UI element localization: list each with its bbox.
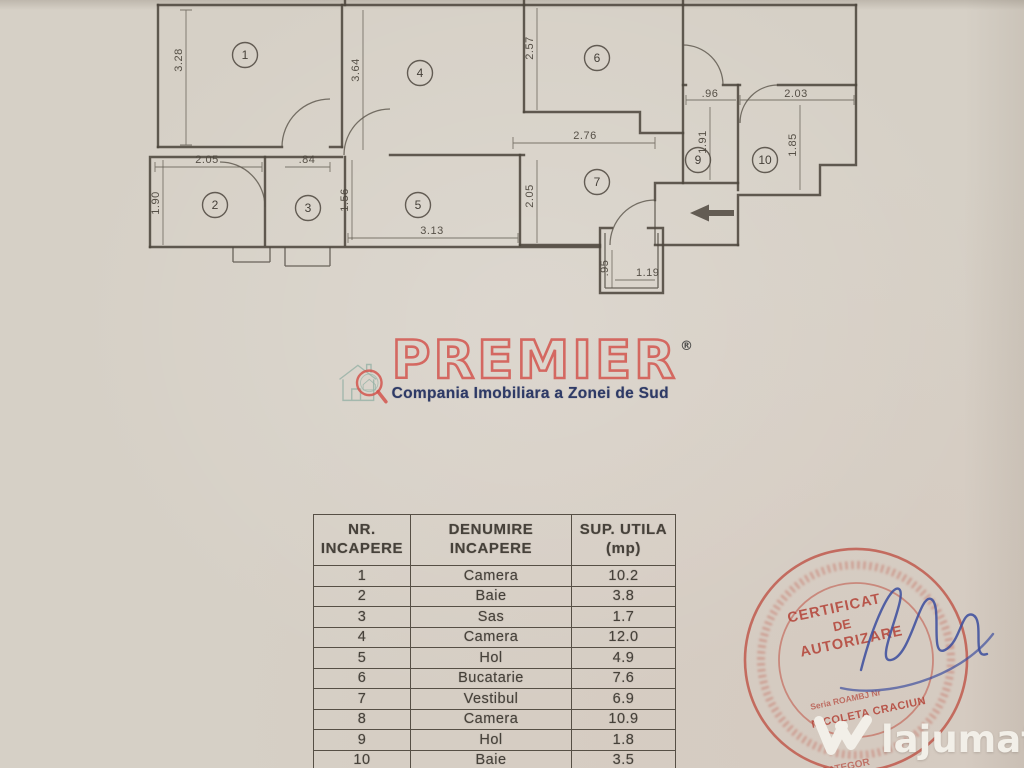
cell-area: 12.0 bbox=[572, 627, 676, 648]
watermark-site: lajumate bbox=[881, 718, 1024, 761]
brand-tagline: Compania Imobiliara a Zonei de Sud bbox=[392, 385, 696, 403]
cell-area: 3.5 bbox=[572, 750, 676, 768]
cell-nr: 8 bbox=[314, 709, 411, 730]
dim-hall-height: 2.05 bbox=[524, 184, 536, 207]
dim-room6-height: 2.57 bbox=[524, 36, 536, 59]
dim-room1-height: 3.28 bbox=[173, 48, 185, 71]
table-row: 1Camera10.2 bbox=[314, 566, 676, 587]
header-room-number-line1: NR. bbox=[314, 521, 410, 540]
watermark-text: lajumate.ro bbox=[881, 721, 1024, 758]
dim-hall-width: 2.76 bbox=[573, 130, 596, 142]
cell-area: 10.2 bbox=[572, 566, 676, 587]
cell-name: Sas bbox=[411, 607, 572, 628]
cell-area: 4.9 bbox=[572, 648, 676, 669]
cell-name: Camera bbox=[411, 709, 572, 730]
header-room-number-line2: INCAPERE bbox=[314, 540, 410, 559]
dim-room2-height: 1.90 bbox=[150, 191, 162, 214]
cell-nr: 5 bbox=[314, 648, 411, 669]
cell-name: Camera bbox=[411, 627, 572, 648]
room-1-label: 1 bbox=[242, 48, 249, 62]
dim-room5-width: 3.13 bbox=[420, 225, 443, 237]
dim-room10-width: 2.03 bbox=[784, 88, 807, 100]
room-areas-table: NR. INCAPERE DENUMIRE INCAPERE SUP. UTIL… bbox=[313, 514, 676, 768]
registered-mark: ® bbox=[680, 339, 696, 354]
header-useful-area: SUP. UTILA (mp) bbox=[572, 515, 676, 566]
stamp-line2: DE bbox=[832, 616, 853, 634]
header-room-name: DENUMIRE INCAPERE bbox=[411, 515, 572, 566]
scanned-floor-plan-page: 3.28 3.64 2.57 2.76 2.05 .96 1.91 2.03 1… bbox=[0, 0, 1024, 768]
cell-nr: 3 bbox=[314, 607, 411, 628]
dim-room10-height: 1.85 bbox=[787, 133, 799, 156]
cell-name: Baie bbox=[411, 586, 572, 607]
dim-room9-height: 1.91 bbox=[697, 130, 709, 153]
lajumate-logo-icon bbox=[812, 714, 874, 764]
brand-text: PREMIER bbox=[392, 330, 678, 391]
header-room-name-line2: INCAPERE bbox=[411, 540, 571, 559]
cell-name: Camera bbox=[411, 566, 572, 587]
cell-nr: 6 bbox=[314, 668, 411, 689]
cell-nr: 7 bbox=[314, 689, 411, 710]
cell-area: 6.9 bbox=[572, 689, 676, 710]
cell-name: Bucatarie bbox=[411, 668, 572, 689]
dim-door3-width: .84 bbox=[299, 154, 316, 166]
header-useful-area-line2: (mp) bbox=[572, 540, 675, 559]
premier-logo: PREMIER® Compania Imobiliara a Zonei de … bbox=[336, 334, 696, 426]
header-useful-area-line1: SUP. UTILA bbox=[572, 521, 675, 540]
dim-room9-width: .96 bbox=[702, 88, 719, 100]
house-magnifier-icon bbox=[336, 334, 388, 430]
cell-nr: 4 bbox=[314, 627, 411, 648]
floor-plan-drawing: 3.28 3.64 2.57 2.76 2.05 .96 1.91 2.03 1… bbox=[0, 0, 1024, 332]
room-3-label: 3 bbox=[305, 201, 312, 215]
cell-area: 1.7 bbox=[572, 607, 676, 628]
dim-room4-height: 3.64 bbox=[350, 58, 362, 81]
room-10-label: 10 bbox=[758, 153, 772, 167]
plan-door-arcs bbox=[220, 45, 778, 245]
room-areas-table-wrap: NR. INCAPERE DENUMIRE INCAPERE SUP. UTIL… bbox=[313, 514, 676, 768]
dim-entry-height: .95 bbox=[599, 260, 611, 277]
table-row: 2Baie3.8 bbox=[314, 586, 676, 607]
table-header-row: NR. INCAPERE DENUMIRE INCAPERE SUP. UTIL… bbox=[314, 515, 676, 566]
room-4-label: 4 bbox=[417, 66, 424, 80]
cell-area: 7.6 bbox=[572, 668, 676, 689]
table-row: 6Bucatarie7.6 bbox=[314, 668, 676, 689]
cell-name: Vestibul bbox=[411, 689, 572, 710]
dim-room2-width: 2.05 bbox=[195, 154, 218, 166]
entrance-arrow-icon bbox=[690, 205, 734, 222]
table-row: 4Camera12.0 bbox=[314, 627, 676, 648]
room-9-label: 9 bbox=[695, 153, 702, 167]
cell-area: 1.8 bbox=[572, 730, 676, 751]
plan-room-numbers: 1 2 3 4 5 6 7 9 10 bbox=[203, 43, 778, 221]
room-5-label: 5 bbox=[415, 198, 422, 212]
lajumate-watermark: lajumate.ro bbox=[812, 714, 1024, 764]
cell-name: Hol bbox=[411, 648, 572, 669]
cell-nr: 9 bbox=[314, 730, 411, 751]
cell-nr: 10 bbox=[314, 750, 411, 768]
dim-room3-height: 1.56 bbox=[339, 188, 351, 211]
table-row: 5Hol4.9 bbox=[314, 648, 676, 669]
table-row: 10Baie3.5 bbox=[314, 750, 676, 768]
header-room-name-line1: DENUMIRE bbox=[411, 521, 571, 540]
logo-text-block: PREMIER® Compania Imobiliara a Zonei de … bbox=[392, 334, 696, 403]
table-row: 3Sas1.7 bbox=[314, 607, 676, 628]
header-room-number: NR. INCAPERE bbox=[314, 515, 411, 566]
cell-nr: 2 bbox=[314, 586, 411, 607]
cell-area: 3.8 bbox=[572, 586, 676, 607]
dim-entry-width: 1.19 bbox=[636, 267, 659, 279]
cell-area: 10.9 bbox=[572, 709, 676, 730]
table-row: 9Hol1.8 bbox=[314, 730, 676, 751]
cell-nr: 1 bbox=[314, 566, 411, 587]
table-row: 8Camera10.9 bbox=[314, 709, 676, 730]
room-7-label: 7 bbox=[594, 175, 601, 189]
table-row: 7Vestibul6.9 bbox=[314, 689, 676, 710]
cell-name: Hol bbox=[411, 730, 572, 751]
room-6-label: 6 bbox=[594, 51, 601, 65]
room-2-label: 2 bbox=[212, 198, 219, 212]
cell-name: Baie bbox=[411, 750, 572, 768]
plan-walls bbox=[150, 0, 856, 293]
brand-name: PREMIER® bbox=[392, 334, 696, 387]
